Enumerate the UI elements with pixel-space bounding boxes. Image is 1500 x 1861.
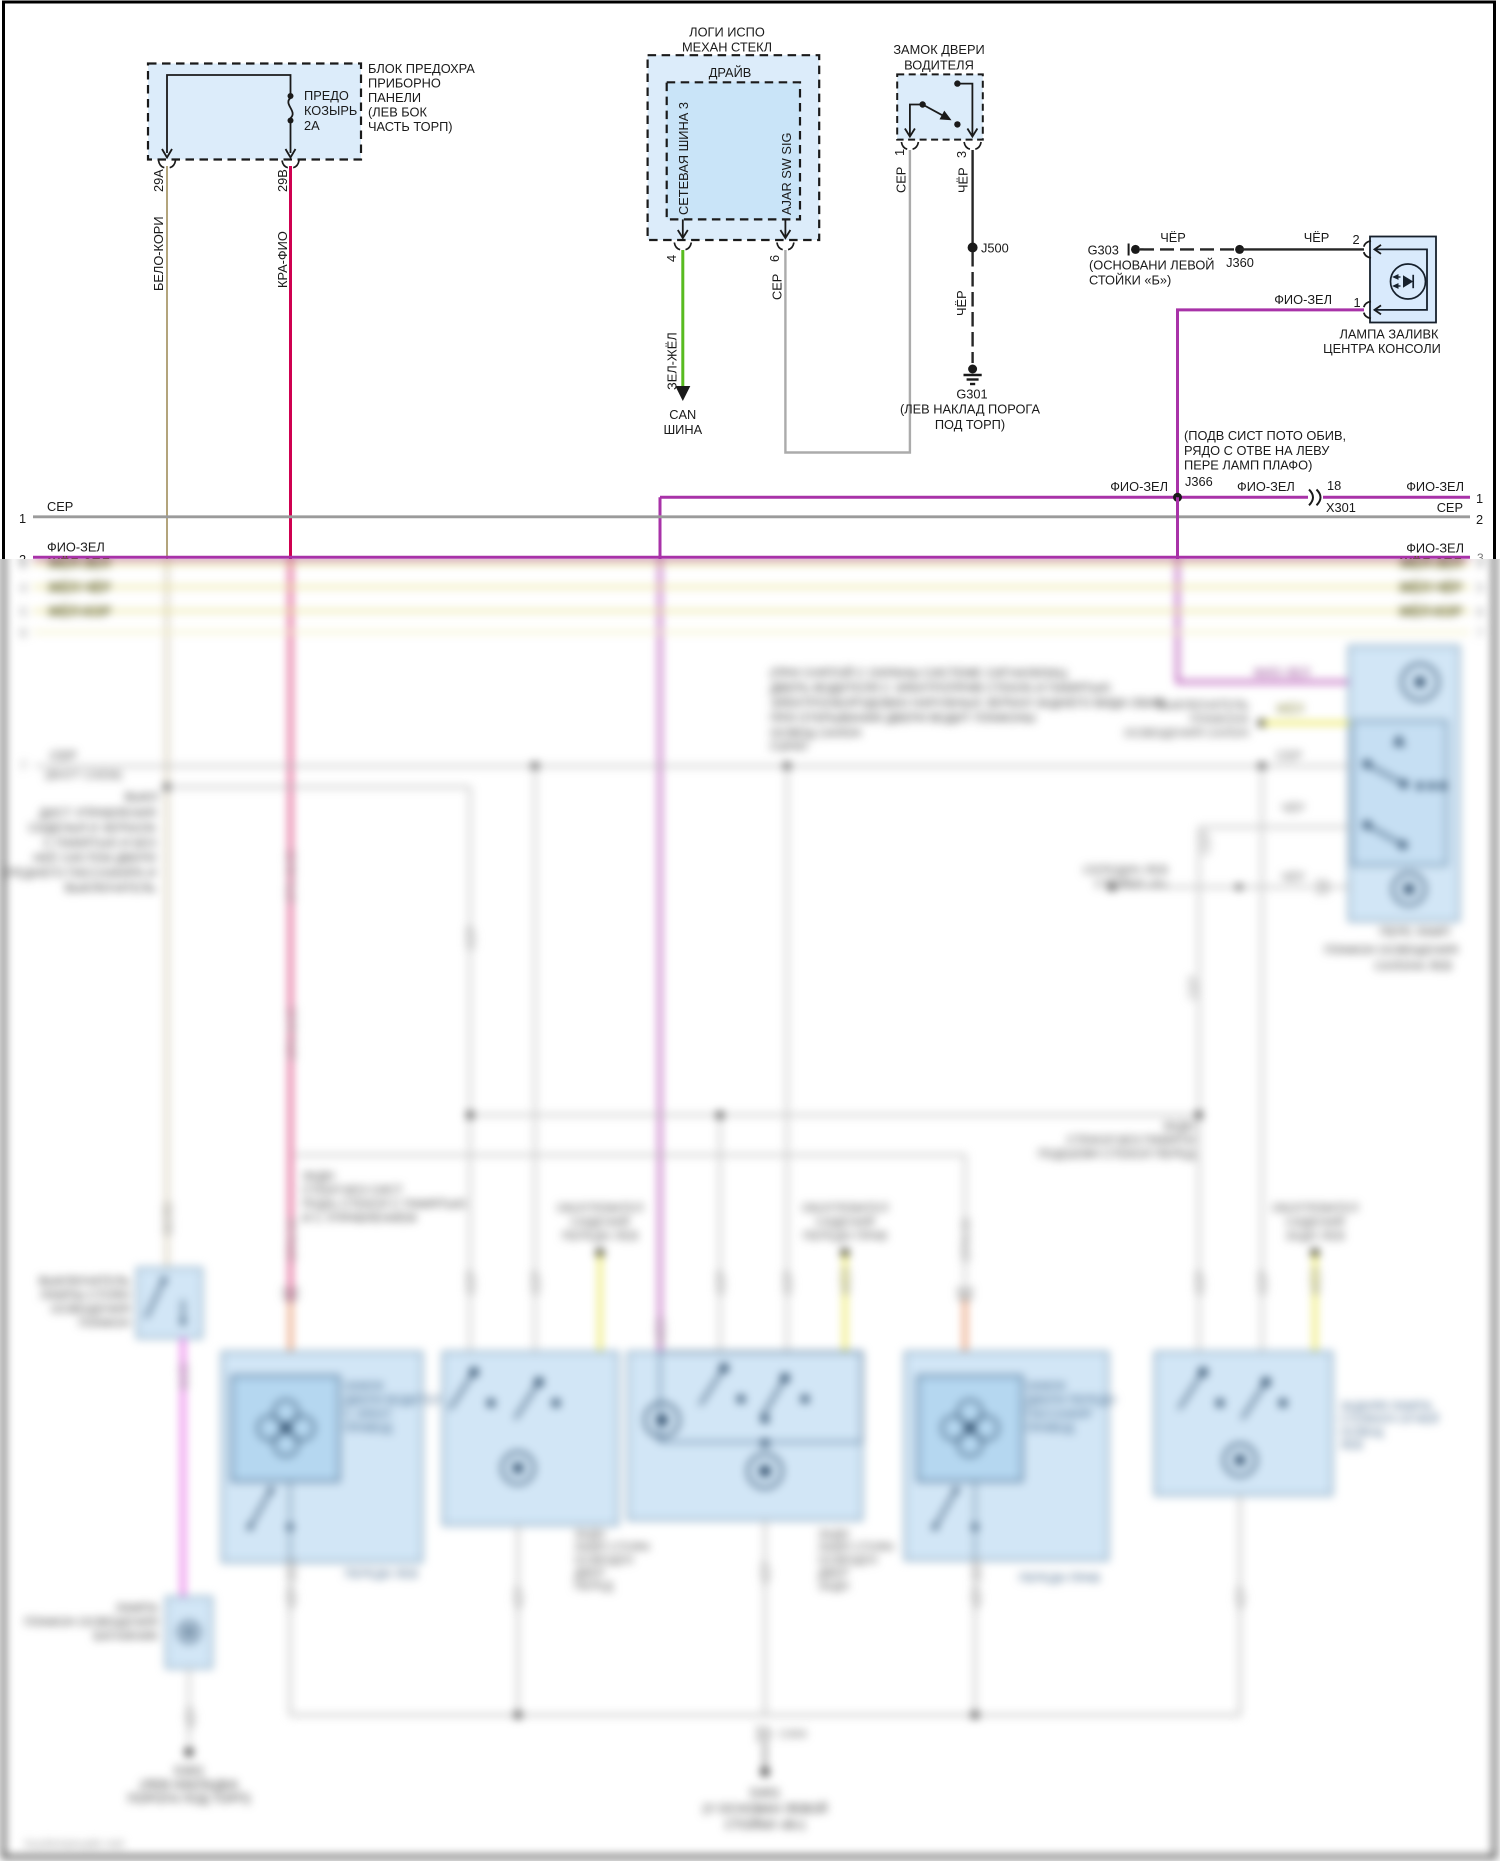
svg-text:ФИО-ЗЕЛ: ФИО-ЗЕЛ (1237, 479, 1295, 494)
svg-text:ЧЁР: ЧЁР (956, 167, 971, 193)
svg-text:29В: 29В (275, 169, 290, 192)
svg-text:ФИО-ЗЕЛ: ФИО-ЗЕЛ (1406, 541, 1464, 556)
svg-text:1: 1 (1354, 295, 1361, 310)
svg-text:КРА-ФИО: КРА-ФИО (275, 231, 290, 288)
svg-text:AJAR SW SIG: AJAR SW SIG (779, 133, 794, 215)
svg-text:ЧЁР: ЧЁР (1160, 230, 1186, 245)
svg-text:БЛОК ПРЕДОХРА: БЛОК ПРЕДОХРА (368, 61, 475, 76)
svg-text:СЕР: СЕР (47, 499, 73, 514)
svg-text:ЧАСТЬ ТОРП): ЧАСТЬ ТОРП) (368, 119, 453, 134)
svg-text:2: 2 (1476, 512, 1483, 527)
svg-text:ПАНЕЛИ: ПАНЕЛИ (368, 90, 421, 105)
svg-text:J366: J366 (1185, 474, 1213, 489)
svg-text:18: 18 (1327, 478, 1341, 493)
svg-text:2А: 2А (304, 118, 320, 133)
svg-text:ПРЕДО: ПРЕДО (304, 88, 349, 103)
svg-text:СЕР: СЕР (894, 167, 909, 193)
svg-text:ЛАМПА ЗАЛИВК: ЛАМПА ЗАЛИВК (1339, 327, 1439, 342)
svg-text:29А: 29А (151, 169, 166, 192)
svg-text:(ЛЕВ НАКЛАД ПОРОГА: (ЛЕВ НАКЛАД ПОРОГА (900, 402, 1041, 417)
svg-text:СЕР: СЕР (770, 274, 785, 300)
svg-text:CAN: CAN (669, 407, 696, 422)
svg-text:2: 2 (1353, 232, 1360, 247)
svg-text:ЛОГИ ИСПО: ЛОГИ ИСПО (689, 25, 765, 40)
svg-text:ФИО-ЗЕЛ: ФИО-ЗЕЛ (1406, 479, 1464, 494)
svg-text:(ПОДВ СИСТ ПОТО ОБИВ,: (ПОДВ СИСТ ПОТО ОБИВ, (1184, 428, 1346, 443)
svg-text:J500: J500 (981, 241, 1009, 256)
svg-text:6: 6 (767, 255, 782, 262)
svg-text:ФИО-ЗЕЛ: ФИО-ЗЕЛ (1110, 479, 1168, 494)
svg-text:ЧЁР: ЧЁР (954, 290, 969, 316)
svg-text:ЧЁР: ЧЁР (1304, 230, 1330, 245)
svg-text:ВОДИТЕЛЯ: ВОДИТЕЛЯ (904, 58, 974, 73)
svg-text:ЗАМОК ДВЕРИ: ЗАМОК ДВЕРИ (893, 42, 984, 57)
svg-text:РЯДО С ОТВЕ НА ЛЕВУ: РЯДО С ОТВЕ НА ЛЕВУ (1184, 443, 1330, 458)
svg-text:МЕХАН СТЕКЛ: МЕХАН СТЕКЛ (682, 40, 772, 55)
svg-text:J360: J360 (1226, 255, 1254, 270)
svg-text:ФИО-ЗЕЛ: ФИО-ЗЕЛ (1274, 292, 1332, 307)
svg-text:G301: G301 (956, 387, 987, 402)
svg-text:БЕЛО-КОРИ: БЕЛО-КОРИ (151, 216, 166, 291)
svg-text:ФИО-ЗЕЛ: ФИО-ЗЕЛ (47, 540, 105, 555)
svg-text:ШИНА: ШИНА (663, 422, 702, 437)
svg-text:ЗЕЛ-ЖЁЛ: ЗЕЛ-ЖЁЛ (665, 332, 680, 390)
svg-text:СЕР: СЕР (1437, 500, 1463, 515)
svg-text:1: 1 (19, 511, 26, 526)
svg-text:СТОЙКИ «Б»): СТОЙКИ «Б») (1089, 273, 1171, 288)
svg-text:1: 1 (892, 149, 907, 156)
svg-text:(ЛЕВ БОК: (ЛЕВ БОК (368, 105, 427, 120)
svg-text:ПОД ТОРП): ПОД ТОРП) (935, 417, 1005, 432)
svg-text:(ОСНОВАНИ ЛЕВОЙ: (ОСНОВАНИ ЛЕВОЙ (1089, 258, 1215, 273)
svg-text:3: 3 (954, 151, 969, 158)
svg-text:G303: G303 (1088, 243, 1119, 258)
svg-text:X301: X301 (1326, 500, 1356, 515)
svg-text:КОЗЫРЬ: КОЗЫРЬ (304, 103, 357, 118)
svg-text:ЦЕНТРА КОНСОЛИ: ЦЕНТРА КОНСОЛИ (1323, 341, 1441, 356)
svg-text:ПРИБОРНО: ПРИБОРНО (368, 76, 441, 91)
svg-text:1: 1 (1476, 491, 1483, 506)
svg-text:ДРАЙВ: ДРАЙВ (709, 65, 752, 80)
svg-text:ПЕРЕ ЛАМП ПЛАФО): ПЕРЕ ЛАМП ПЛАФО) (1184, 458, 1312, 473)
svg-text:СЕТЕВАЯ ШИНА 3: СЕТЕВАЯ ШИНА 3 (676, 102, 691, 215)
svg-text:4: 4 (664, 255, 679, 262)
